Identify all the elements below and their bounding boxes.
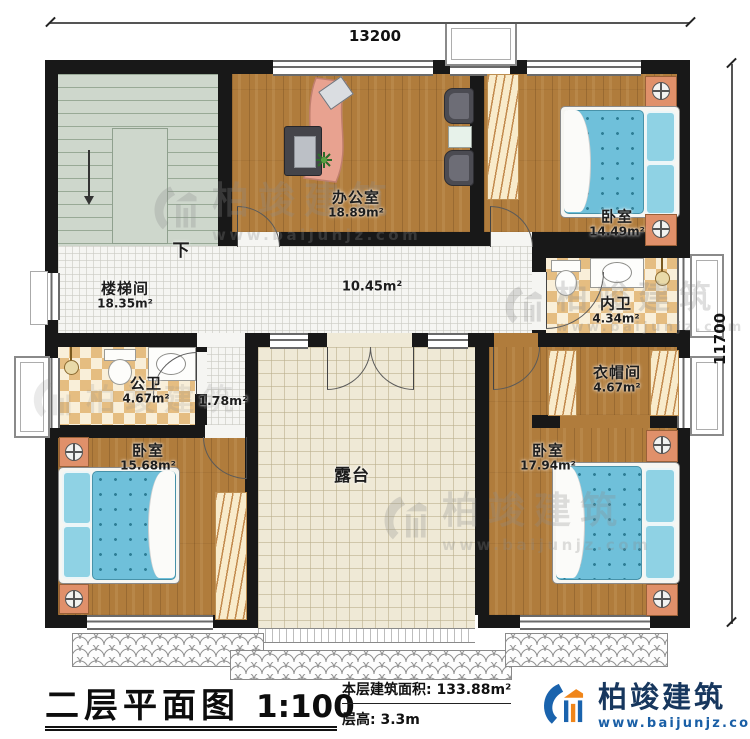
room-name: 内卫 xyxy=(592,295,639,312)
room-label-office: 办公室 18.89m² xyxy=(328,189,384,220)
office-chair-seat xyxy=(449,155,469,181)
door-gap-terrace xyxy=(327,333,412,347)
wall-terrace-east xyxy=(475,333,489,615)
shower-head-icon xyxy=(655,271,670,286)
room-name: 卧室 xyxy=(589,208,645,225)
brand-name: 柏竣建筑 xyxy=(598,674,750,716)
floor-area-label: 本层建筑面积: xyxy=(342,682,432,698)
shower-cord xyxy=(661,258,663,272)
room-name: 公卫 xyxy=(122,375,169,392)
room-label-hallway: 1.78m² xyxy=(198,394,247,408)
window-sill-left xyxy=(30,271,48,325)
floor-height-value: 3.3m xyxy=(380,712,419,728)
wardrobe-cloakroom-left xyxy=(548,350,577,416)
door-gap-bedroom-se xyxy=(494,333,538,347)
floor-area-row: 本层建筑面积: 133.88m² xyxy=(342,679,511,704)
shower-head-icon xyxy=(64,360,79,375)
plan-title: 二层平面图 xyxy=(45,678,240,727)
pillow xyxy=(645,111,676,163)
plan-scale: 1:100 xyxy=(256,689,355,725)
wall-stair-office xyxy=(218,60,232,246)
window-terrace-right xyxy=(428,333,468,349)
room-label-terrace: 露台 xyxy=(334,467,370,487)
room-label-bedroom-ne: 卧室 14.49m² xyxy=(589,208,645,239)
roof-tiles-center xyxy=(230,650,512,680)
sink-basin xyxy=(602,262,632,283)
room-label-public-bath: 公卫 4.67m² xyxy=(122,375,169,406)
room-label-cloakroom: 衣帽间 4.67m² xyxy=(593,364,641,395)
bay-window-top xyxy=(445,22,517,66)
stair-arrow-line xyxy=(88,150,90,196)
room-area: 18.35m² xyxy=(97,298,153,312)
window-office-north xyxy=(273,60,433,76)
roof-tiles-right xyxy=(505,633,668,667)
room-name: 楼梯间 xyxy=(97,280,153,297)
nightstand xyxy=(59,437,89,467)
bay-window-right-cloakroom xyxy=(690,356,724,436)
lamp-icon xyxy=(653,436,671,454)
office-chair-2 xyxy=(444,150,474,186)
brand-logo: 柏竣建筑 www.baijunjz.com xyxy=(538,674,750,731)
brand-url: www.baijunjz.com xyxy=(598,716,750,731)
pillow xyxy=(62,525,92,579)
wardrobe-bedroom-sw xyxy=(215,492,247,620)
room-name: 卧室 xyxy=(520,442,576,459)
room-area: 17.94m² xyxy=(520,460,576,474)
dimension-line-right xyxy=(731,64,733,624)
lamp-icon xyxy=(653,590,671,608)
floor-plan-page: 柏竣建筑 www.baijunjz.com 柏竣建筑 www.baijunjz.… xyxy=(0,0,750,739)
lamp-icon xyxy=(65,590,83,608)
room-name: 办公室 xyxy=(328,189,384,206)
room-area: 4.67m² xyxy=(122,393,169,407)
wardrobe-bedroom-ne xyxy=(487,74,519,200)
duvet xyxy=(148,471,175,578)
nightstand xyxy=(59,584,89,614)
nightstand xyxy=(646,430,678,462)
room-label-bedroom-se: 卧室 17.94m² xyxy=(520,442,576,473)
titleblock: 二层平面图 1:100 xyxy=(45,678,337,731)
pillow xyxy=(645,163,676,215)
dimension-label-top: 13200 xyxy=(340,27,410,45)
room-label-inner-bath: 内卫 4.34m² xyxy=(592,295,639,326)
shower-cord xyxy=(70,347,72,361)
dimension-label-right: 11700 xyxy=(711,311,729,367)
office-chair-seat xyxy=(449,93,469,119)
room-area: 18.89m² xyxy=(328,207,384,221)
floor-height-label: 层高: xyxy=(342,712,376,728)
floor-area-value: 133.88m² xyxy=(436,682,511,698)
office-monitor-screen xyxy=(294,136,316,168)
lamp-icon xyxy=(652,82,670,100)
nightstand xyxy=(645,214,677,246)
room-area: 4.34m² xyxy=(592,313,639,327)
stair-arrow-head xyxy=(84,196,94,205)
office-chair-1 xyxy=(444,88,474,124)
bay-window-left xyxy=(14,356,50,438)
opening-hallway xyxy=(197,333,245,347)
stair-down-label: 下 xyxy=(173,242,190,262)
terrace-railing xyxy=(258,628,475,643)
room-area: 15.68m² xyxy=(120,460,176,474)
pillow xyxy=(62,471,92,525)
pillow xyxy=(644,524,676,580)
nightstand xyxy=(646,584,678,616)
room-label-corridor: 10.45m² xyxy=(342,281,402,296)
floor-height-row: 层高: 3.3m xyxy=(342,704,511,729)
room-area: 14.49m² xyxy=(589,226,645,240)
window-bedroom-ne-north xyxy=(527,60,641,76)
lamp-icon xyxy=(652,220,670,238)
wardrobe-cloakroom-right xyxy=(650,350,679,416)
office-plant xyxy=(314,150,334,170)
plan-info: 本层建筑面积: 133.88m² 层高: 3.3m xyxy=(342,679,511,729)
room-name: 卧室 xyxy=(120,442,176,459)
room-label-stairwell: 楼梯间 18.35m² xyxy=(97,280,153,311)
nightstand xyxy=(645,76,677,108)
door-gap-inner-bath xyxy=(532,272,546,330)
terrace-floor xyxy=(258,347,475,628)
office-side-table xyxy=(448,126,472,148)
room-label-bedroom-sw: 卧室 15.68m² xyxy=(120,442,176,473)
wall-corridor-south-west xyxy=(45,333,197,347)
room-name: 衣帽间 xyxy=(593,364,641,381)
dimension-line-top xyxy=(50,22,690,24)
wall-innerbath-north xyxy=(532,246,690,258)
stair-landing xyxy=(112,128,168,244)
pillow xyxy=(644,468,676,524)
room-area: 4.67m² xyxy=(593,382,641,396)
lamp-icon xyxy=(65,443,83,461)
wall-innerbath-south xyxy=(532,333,690,347)
window-bedroom-se-south xyxy=(520,615,650,630)
window-bedroom-sw-south xyxy=(87,615,213,630)
opening-cloakroom xyxy=(560,415,650,428)
brand-logo-icon xyxy=(538,677,590,729)
window-terrace-left xyxy=(270,333,308,349)
